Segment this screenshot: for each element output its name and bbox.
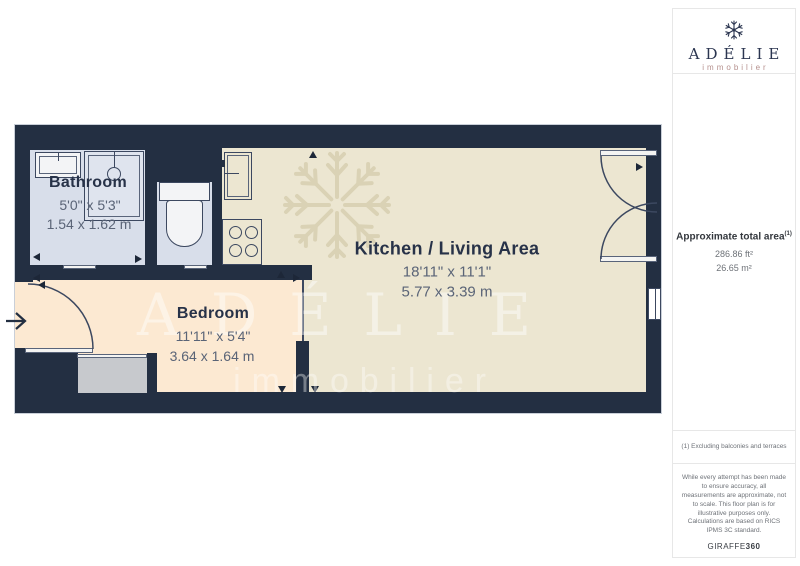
stove [222, 219, 262, 265]
sidebar: ADÉLIE immobilier Approximate total area… [672, 8, 796, 558]
bathroom-sliding-door [63, 265, 96, 269]
toilet-tank [159, 182, 210, 201]
area-footnote: (1) Excluding balconies and terraces [673, 443, 795, 450]
kitchen-living-label: Kitchen / Living Area [355, 239, 540, 260]
marker-icon [636, 163, 643, 171]
disclaimer-standard: Calculations are based on RICS IPMS 3C s… [673, 517, 795, 535]
area-footnote-marker: (1) [785, 231, 792, 237]
bedroom-label: Bedroom [177, 305, 249, 323]
toilet-bowl [166, 200, 203, 247]
balcony-door-leaf-top [600, 150, 657, 156]
marker-icon [38, 281, 45, 289]
area-metric: 26.65 m² [673, 263, 795, 273]
divider [673, 73, 795, 74]
window-right [648, 288, 661, 320]
marker-icon [278, 386, 286, 393]
marker-icon [277, 271, 285, 278]
bathroom-dim-metric: 1.54 x 1.62 m [47, 216, 132, 232]
marker-icon [293, 274, 300, 282]
wall-bottom-left [33, 353, 78, 413]
marker-icon [33, 253, 40, 261]
bathroom-label: Bathroom [49, 174, 127, 192]
snowflake-logo-icon [723, 19, 745, 41]
divider [673, 463, 795, 464]
wall-bedroom-kitchen [296, 341, 309, 393]
bedroom-dim-imperial: 11'11" x 5'4" [176, 328, 251, 344]
wall-closet-right [147, 353, 157, 397]
kitchen-tap [218, 160, 225, 167]
marker-icon [311, 386, 319, 393]
closet-door-strip [77, 354, 147, 358]
partition-line [302, 280, 304, 341]
balcony-door-leaf-bottom [600, 256, 657, 262]
divider [673, 430, 795, 431]
bathroom-dim-imperial: 5'0" x 5'3" [59, 197, 120, 213]
kitchen-living-dim-imperial: 18'11" x 11'1" [403, 264, 491, 281]
closet [78, 358, 147, 393]
kitchen-living-dim-metric: 5.77 x 3.39 m [402, 284, 493, 301]
kitchen-sink [224, 152, 252, 200]
floorplan-page: Bathroom 5'0" x 5'3" 1.54 x 1.62 m Bedro… [0, 0, 800, 566]
brand-tagline: immobilier [673, 63, 795, 72]
wc-sliding-door [184, 265, 207, 269]
area-label: Approximate total area(1) [673, 231, 795, 242]
area-imperial: 286.86 ft² [673, 249, 795, 259]
entrance-recess [15, 282, 33, 348]
entrance-door-leaf [25, 348, 93, 353]
bedroom-dim-metric: 3.64 x 1.64 m [170, 348, 255, 364]
disclaimer-accuracy: While every attempt has been made to ens… [673, 473, 795, 518]
brand-name: ADÉLIE [673, 45, 795, 63]
provider-logo: GIRAFFE360 [673, 542, 795, 551]
marker-icon [135, 255, 142, 263]
